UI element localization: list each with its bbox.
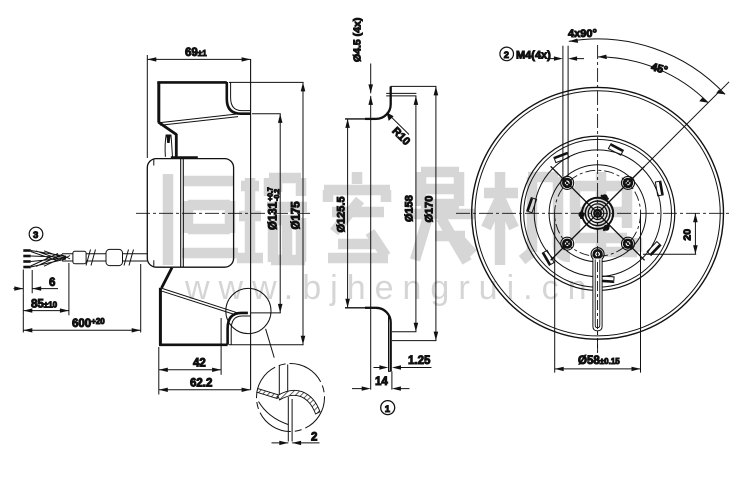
svg-text:2: 2	[311, 432, 317, 444]
svg-text:42: 42	[193, 358, 206, 370]
svg-text:62.2: 62.2	[190, 377, 212, 389]
svg-text:14: 14	[375, 376, 388, 388]
svg-text:6: 6	[49, 277, 55, 289]
svg-text:Ø175: Ø175	[291, 201, 303, 230]
svg-text:M4(4x): M4(4x)	[516, 50, 551, 62]
svg-text:Ø131: Ø131	[268, 201, 280, 230]
svg-text:600+20: 600+20	[72, 317, 105, 330]
svg-text:Ø58±0.15: Ø58±0.15	[578, 355, 620, 367]
svg-text:4x90°: 4x90°	[568, 28, 597, 40]
svg-text:www.bjhengrui.cn: www.bjhengrui.cn	[184, 269, 595, 307]
svg-text:R10: R10	[389, 125, 412, 148]
svg-text:1.25: 1.25	[408, 355, 431, 367]
svg-text:2: 2	[504, 50, 509, 61]
svg-text:Ø158: Ø158	[403, 195, 415, 222]
svg-text:69±1: 69±1	[185, 47, 207, 59]
svg-text:-0.2: -0.2	[274, 189, 281, 201]
svg-text:45°: 45°	[650, 61, 669, 77]
svg-text:3: 3	[33, 230, 38, 241]
svg-text:Ø170: Ø170	[423, 196, 435, 223]
svg-text:85±10: 85±10	[31, 299, 58, 311]
svg-text:1: 1	[385, 404, 391, 415]
svg-text:Ø4.5 (4x): Ø4.5 (4x)	[352, 18, 364, 62]
svg-text:20: 20	[681, 229, 693, 241]
svg-text:Ø125.5: Ø125.5	[335, 196, 347, 232]
